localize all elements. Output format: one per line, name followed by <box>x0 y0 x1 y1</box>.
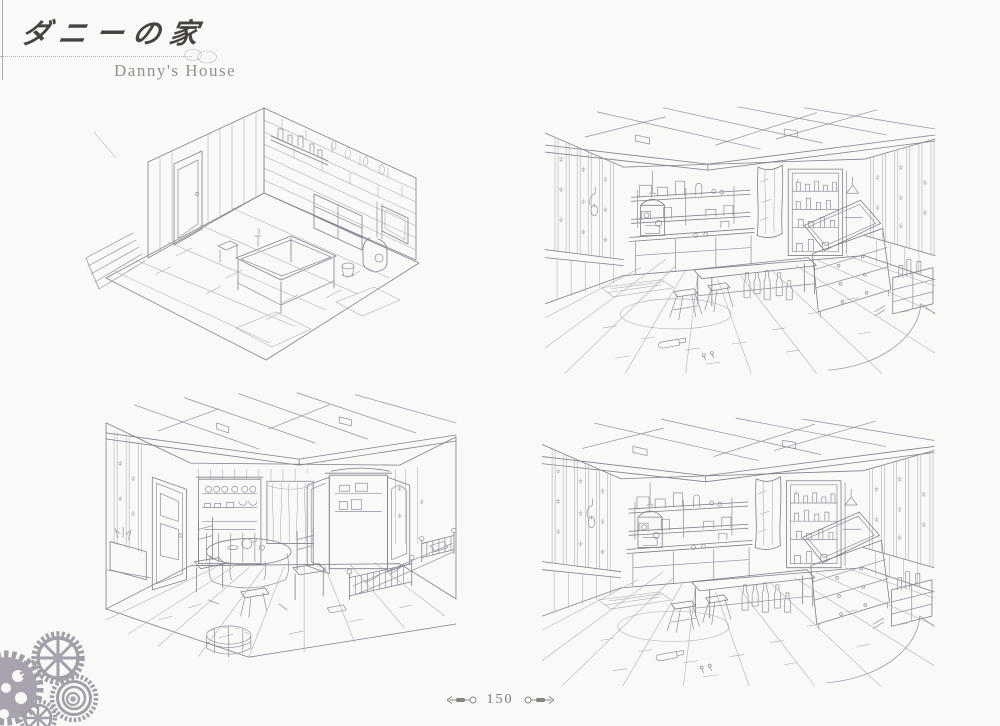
workshop-room-sketch <box>545 106 937 374</box>
sketch-panel-workshop-top <box>545 106 937 379</box>
page-footer: 150 <box>0 692 1000 708</box>
key-ornament-icon <box>524 694 554 706</box>
sketch-panel-workshop-bottom <box>542 417 936 692</box>
workshop-room-sketch-2 <box>542 417 936 687</box>
header-left-rule <box>2 0 3 80</box>
key-ornament-icon <box>447 694 477 706</box>
sketch-panel-isometric <box>86 98 438 369</box>
artbook-page: ダニーの家 Danny's House <box>0 0 1000 726</box>
title-underline <box>0 56 192 57</box>
isometric-room-sketch <box>86 98 438 364</box>
page-title: ダニーの家 <box>18 12 210 52</box>
bedroom-sketch <box>98 392 460 670</box>
page-number: 150 <box>487 692 514 708</box>
sketch-panel-bedroom <box>98 392 460 675</box>
page-subtitle: Danny's House <box>114 61 236 81</box>
gear-cluster-icon <box>0 606 112 726</box>
